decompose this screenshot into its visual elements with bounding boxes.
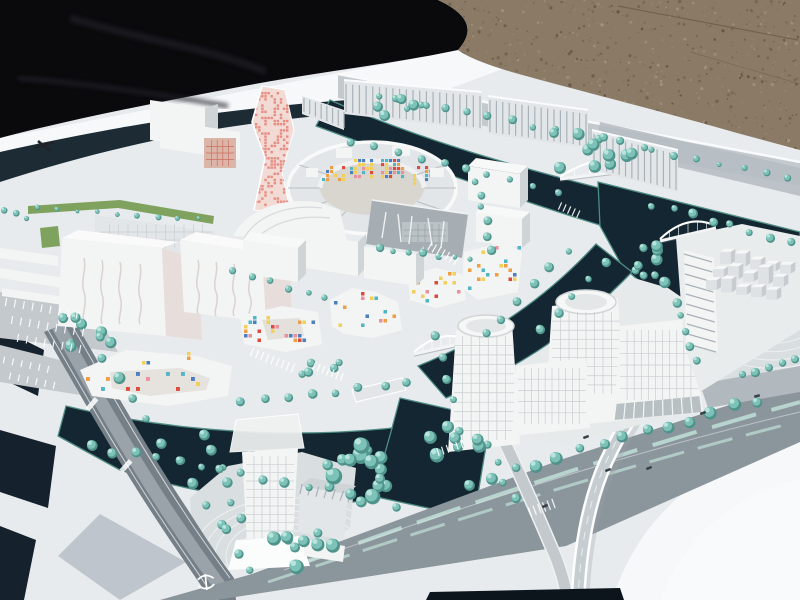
architectural-model-photo bbox=[0, 0, 800, 600]
annex-building bbox=[298, 486, 348, 540]
mid-rise-slab bbox=[512, 358, 590, 436]
tower-crown bbox=[230, 414, 304, 452]
scene-canvas bbox=[0, 0, 800, 600]
green-patch bbox=[40, 226, 60, 248]
